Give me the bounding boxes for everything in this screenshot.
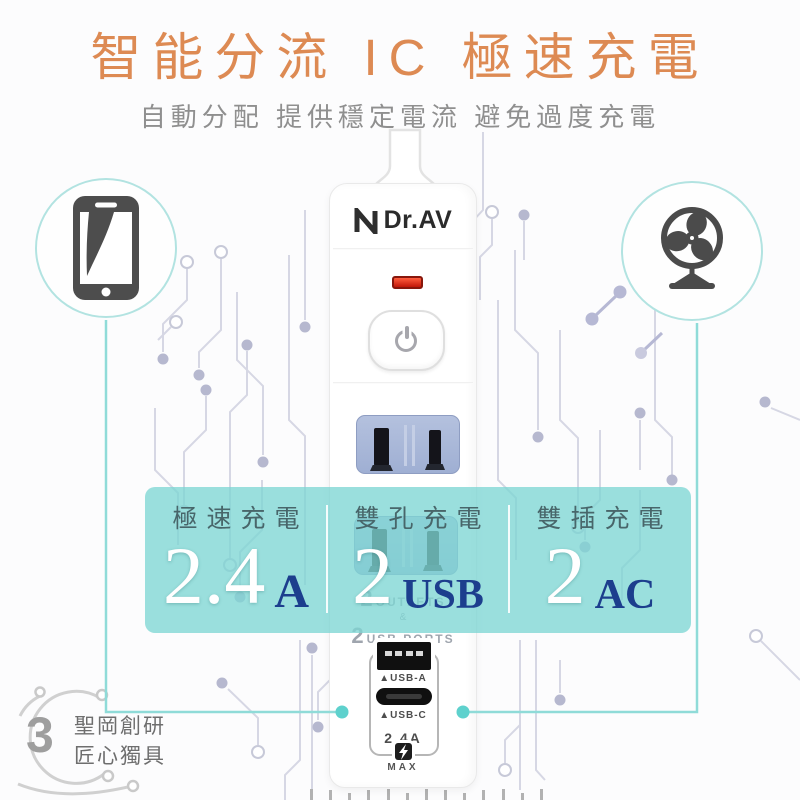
footer-slogan-line1: 聖岡創研 (74, 712, 166, 742)
max-label: MAX (330, 762, 476, 773)
ac-outlet-1 (356, 415, 460, 474)
panel-seam (333, 382, 473, 384)
feature-band: 極速充電 2.4 A 雙孔充電 2 USB 雙插充電 2 AC (145, 487, 691, 633)
usb-a-port (377, 642, 431, 670)
bottom-fins-decoration (310, 789, 543, 800)
footer-slogan-line2: 匠心獨具 (74, 742, 166, 772)
power-icon (394, 328, 420, 354)
power-button (368, 310, 445, 371)
feature-unit: A (274, 564, 309, 619)
feature-value: 2 (352, 537, 393, 615)
fan-feature-circle (621, 181, 763, 321)
brand-logo: Dr.AV (330, 206, 476, 235)
feature-label: 雙插充電 (509, 499, 691, 535)
brand-footer: 3 聖岡創研 匠心獨具 (0, 682, 260, 800)
usb-c-label: ▲USB-C (330, 710, 476, 721)
product-promo-image: 智能分流 IC 極速充電 自動分配 提供穩定電流 避免過度充電 (0, 0, 800, 800)
feature-col-ac: 雙插充電 2 AC (509, 487, 691, 633)
usb-c-port (376, 688, 432, 705)
feature-value: 2 (545, 537, 586, 615)
power-indicator-led (392, 276, 423, 289)
feature-unit: USB (402, 571, 484, 619)
smartphone-icon (73, 196, 139, 300)
panel-seam (333, 248, 473, 250)
lightning-icon (395, 743, 412, 760)
usb-a-label: ▲USB-A (330, 673, 476, 684)
feature-unit: AC (595, 571, 656, 619)
feature-col-usb: 雙孔充電 2 USB (327, 487, 509, 633)
power-cord (0, 0, 800, 200)
brand-name: Dr.AV (384, 206, 453, 235)
feature-value: 2.4 (163, 537, 266, 615)
power-strip-product: Dr.AV 2 OUTLETS & 2 (329, 183, 477, 788)
feature-col-fast-charge: 極速充電 2.4 A (145, 487, 327, 633)
fan-icon (653, 204, 731, 298)
brand-logo-mark (354, 208, 378, 234)
footer-slogan: 聖岡創研 匠心獨具 (74, 712, 166, 772)
footer-number: 3 (26, 706, 54, 764)
